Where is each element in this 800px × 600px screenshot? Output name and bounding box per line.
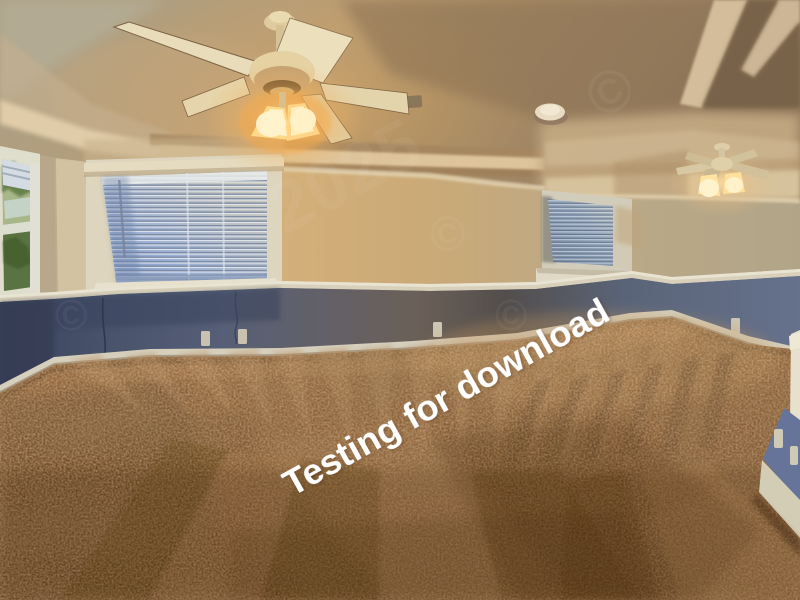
- svg-text:©: ©: [430, 208, 465, 261]
- svg-text:©: ©: [55, 291, 87, 340]
